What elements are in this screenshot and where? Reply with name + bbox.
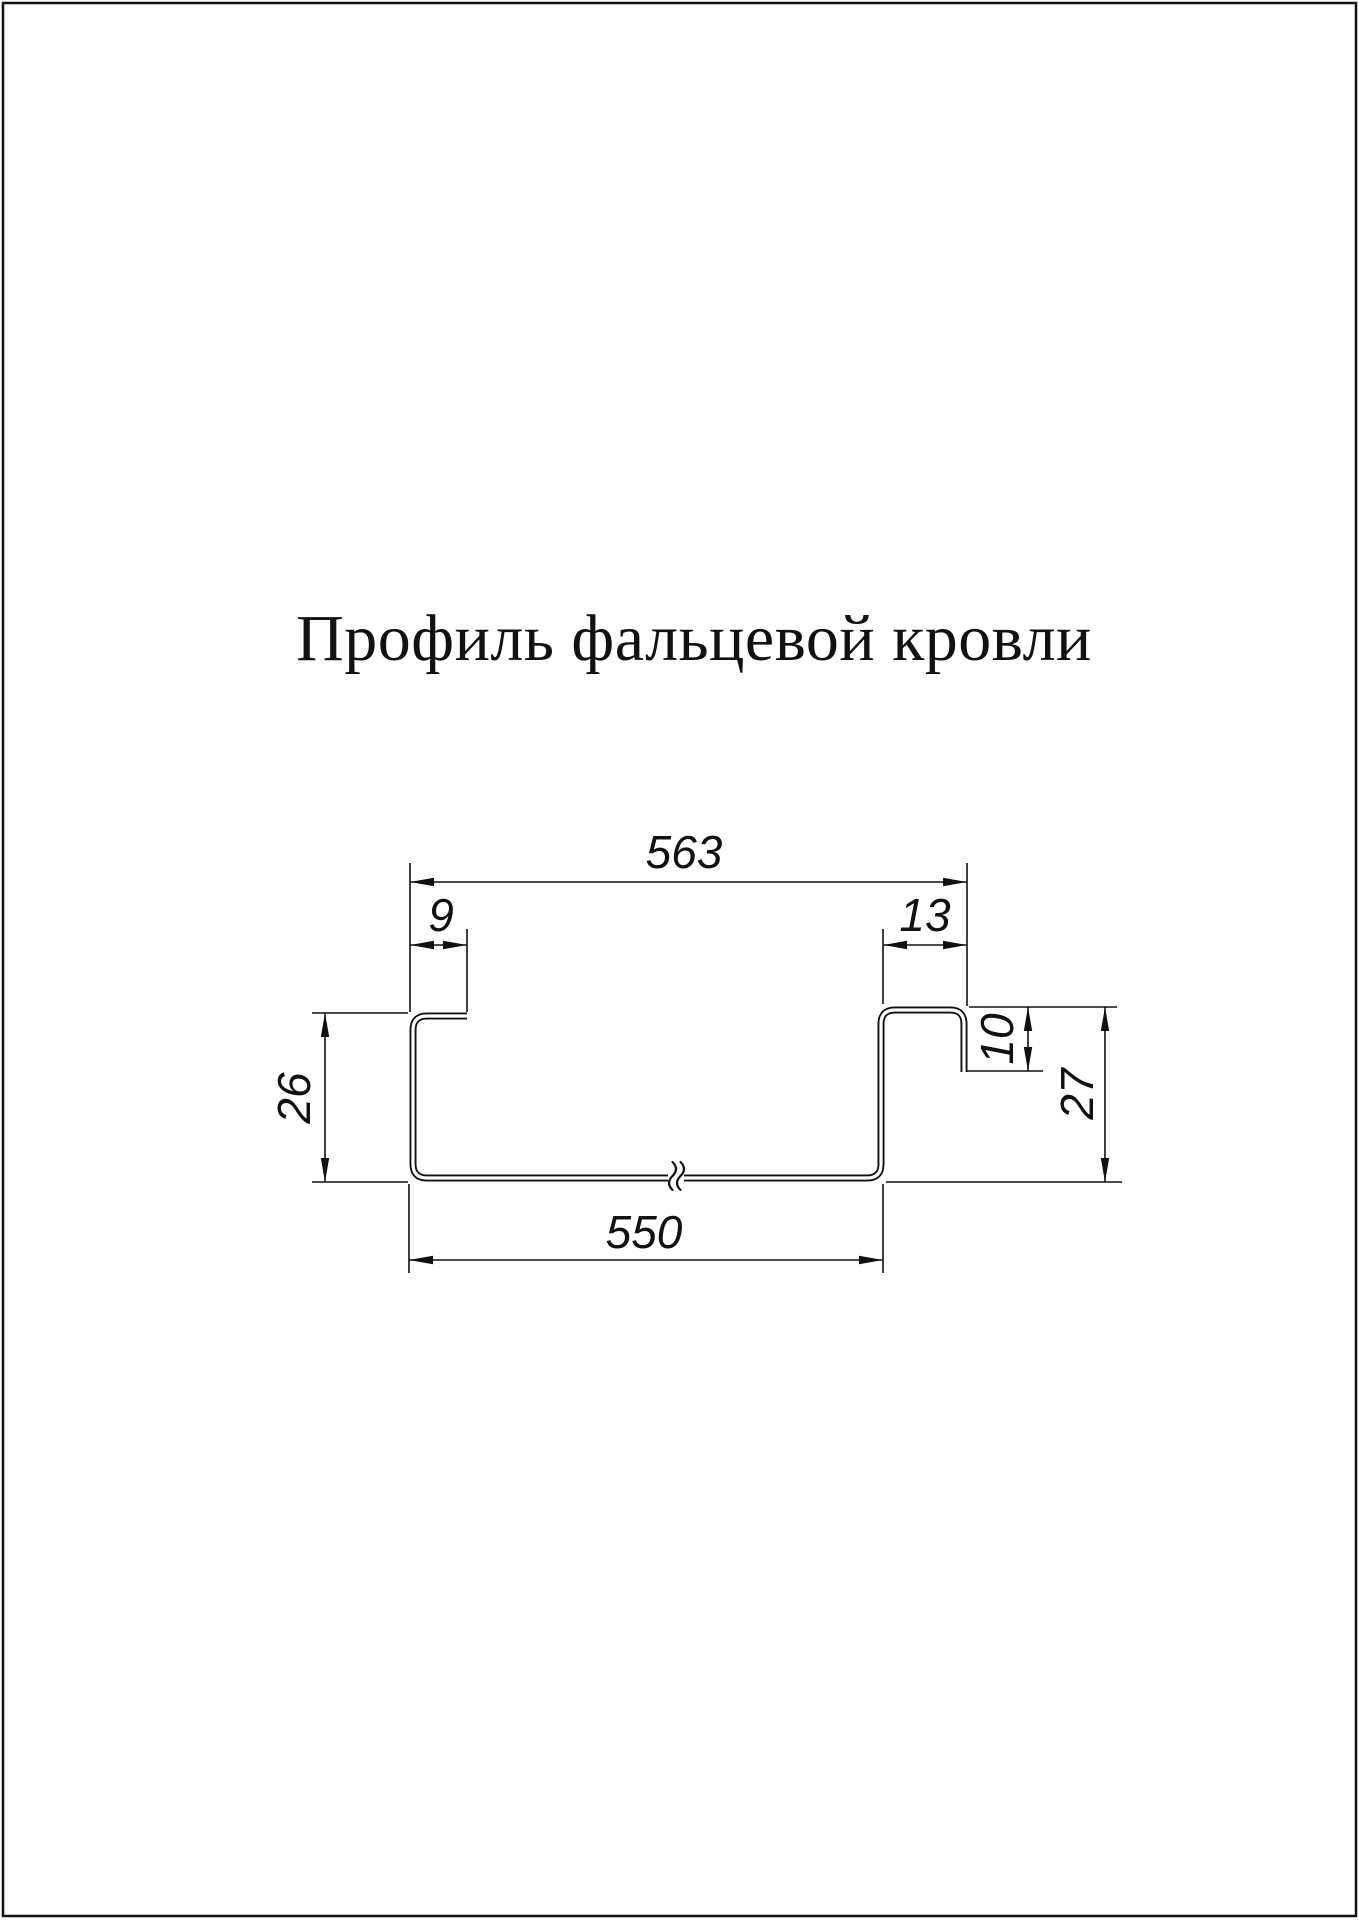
sheet-border bbox=[3, 3, 1356, 1916]
arrowhead bbox=[410, 941, 434, 949]
profile-outline bbox=[413, 1010, 964, 1190]
dim-label-26: 26 bbox=[268, 1072, 320, 1125]
arrowhead bbox=[883, 941, 907, 949]
drawing-canvas: Профиль фальцевой кровли 563 bbox=[0, 0, 1359, 1920]
arrowhead bbox=[321, 1013, 329, 1037]
arrowhead bbox=[321, 1158, 329, 1182]
arrowhead bbox=[943, 941, 967, 949]
arrowhead bbox=[859, 1256, 883, 1264]
arrowhead bbox=[1024, 1007, 1032, 1031]
dim-label-13: 13 bbox=[899, 889, 951, 941]
profile-inner-line bbox=[413, 1010, 964, 1178]
dimension-9: 9 bbox=[410, 889, 467, 1012]
arrowhead bbox=[1024, 1047, 1032, 1071]
dim-label-550: 550 bbox=[606, 1206, 683, 1258]
page-title: Профиль фальцевой кровли bbox=[296, 602, 1092, 675]
dimension-26: 26 bbox=[268, 1013, 408, 1182]
dim-label-563: 563 bbox=[646, 826, 723, 878]
dimension-550: 550 bbox=[409, 1184, 883, 1273]
break-symbol bbox=[668, 1162, 684, 1190]
dimension-10: 10 bbox=[966, 1007, 1117, 1071]
arrowhead bbox=[1101, 1007, 1109, 1031]
dim-label-27: 27 bbox=[1051, 1067, 1103, 1121]
arrowhead bbox=[1101, 1158, 1109, 1182]
dim-label-10: 10 bbox=[971, 1013, 1023, 1065]
drawing-sheet: Профиль фальцевой кровли 563 bbox=[0, 0, 1359, 1920]
arrowhead bbox=[943, 878, 967, 886]
dimension-13: 13 bbox=[883, 889, 967, 1004]
dim-label-9: 9 bbox=[428, 889, 454, 941]
arrowhead bbox=[410, 878, 434, 886]
arrowhead bbox=[443, 941, 467, 949]
arrowhead bbox=[409, 1256, 433, 1264]
